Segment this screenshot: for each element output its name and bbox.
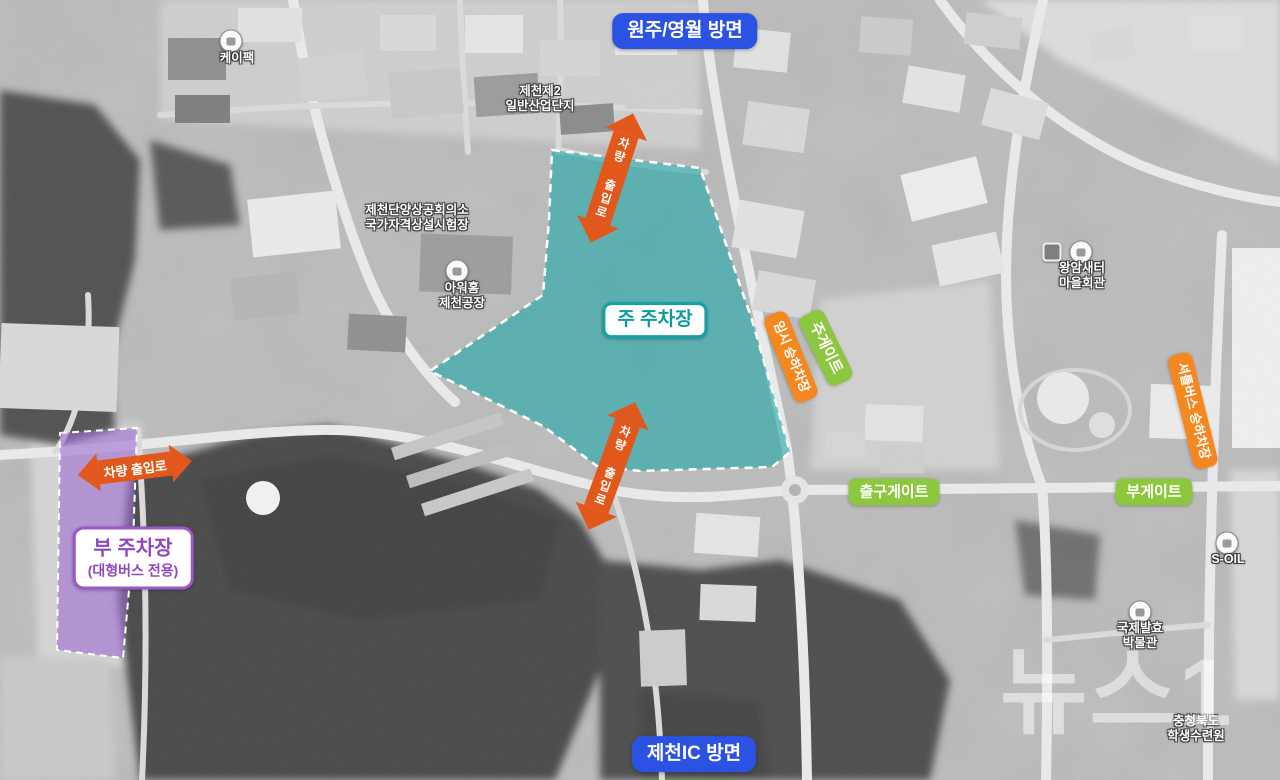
poi-label-village-hall: 왕암새터 마을회관 xyxy=(1059,261,1105,291)
poi-icon-ourhome xyxy=(446,260,469,283)
sub-gate-badge: 부게이트 xyxy=(1115,478,1192,505)
direction-badge-wonju-yeongwol: 원주/영월 방면 xyxy=(612,13,757,49)
poi-label-industrial-complex: 제천제2 일반산업단지 xyxy=(505,84,574,114)
arrow-right-icon xyxy=(169,442,194,482)
direction-badge-jecheon-ic: 제천IC 방면 xyxy=(632,736,756,772)
poi-label-kpack: 케이팩 xyxy=(220,51,255,66)
poi-label-ourhome: 아워홈 제천공장 xyxy=(439,281,485,311)
poi-label-chamber: 제천단양상공회의소 국가자격상설시험장 xyxy=(365,203,469,233)
bus-stop-icon xyxy=(1043,243,1062,262)
poi-label-soil: S-OIL xyxy=(1211,552,1244,567)
main-parking-badge: 주 주차장 xyxy=(602,302,707,338)
poi-icon-kpack xyxy=(220,30,243,53)
satellite-map: 케이팩 제천제2 일반산업단지 제천단양상공회의소 국가자격상설시험장 아워홈 … xyxy=(0,0,1280,780)
news1-watermark: 뉴스1 xyxy=(1000,646,1234,741)
exit-gate-badge: 출구게이트 xyxy=(848,478,939,505)
sub-parking-badge: 부 주차장 (대형버스 전용) xyxy=(73,526,194,589)
